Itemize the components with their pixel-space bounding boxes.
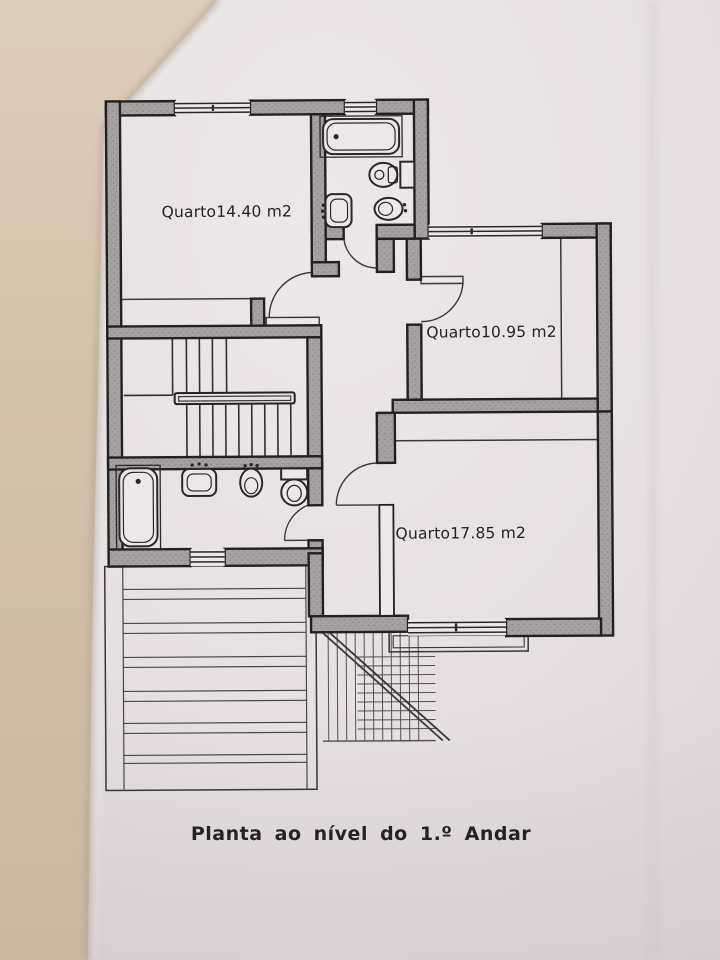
closet-line-bedroom2 — [561, 238, 562, 399]
window-bedroom2 — [429, 224, 542, 239]
wall-divider — [393, 399, 598, 413]
wall — [107, 325, 321, 338]
sink-icon — [321, 194, 352, 227]
wall — [598, 411, 613, 635]
wall — [407, 325, 421, 400]
wall — [414, 100, 429, 239]
window-bedroom3 — [408, 619, 506, 636]
paper-crease-right — [648, 0, 658, 960]
plan-title: Planta ao nível do 1.º Andar — [191, 823, 531, 845]
bathtub-icon — [320, 116, 402, 158]
room-label-bedroom1: Quarto14.40 m2 — [161, 202, 292, 221]
wall — [407, 239, 421, 280]
window-bedroom1 — [175, 101, 250, 115]
window-bathroom-bottom — [191, 549, 225, 566]
wall-jamb — [251, 299, 264, 326]
wall — [311, 616, 408, 633]
wall — [377, 225, 415, 239]
wall — [377, 413, 395, 463]
room-label-bedroom2: Quarto10.95 m2 — [426, 323, 557, 342]
wall-exterior-right — [597, 223, 612, 411]
wall — [309, 553, 323, 616]
wall-jamb — [377, 239, 394, 272]
room-label-bedroom3: Quarto17.85 m2 — [395, 524, 526, 543]
toilet-icon — [369, 162, 414, 188]
wall — [307, 337, 322, 505]
closet-line-bedroom1 — [121, 299, 251, 300]
window-bathroom-top — [345, 100, 376, 114]
floor-plan-photo: Quarto14.40 m2 Quarto10.95 m2 Quarto17.8… — [0, 0, 720, 960]
wall — [250, 100, 345, 115]
wall-jamb — [312, 262, 339, 276]
wall — [109, 549, 191, 567]
bathtub-icon — [116, 465, 161, 549]
floor-plan-canvas: Quarto14.40 m2 Quarto10.95 m2 Quarto17.8… — [0, 0, 720, 960]
wall — [506, 619, 601, 637]
toilet-icon — [281, 468, 307, 505]
handrail — [175, 392, 295, 404]
partition-wall — [379, 505, 394, 616]
